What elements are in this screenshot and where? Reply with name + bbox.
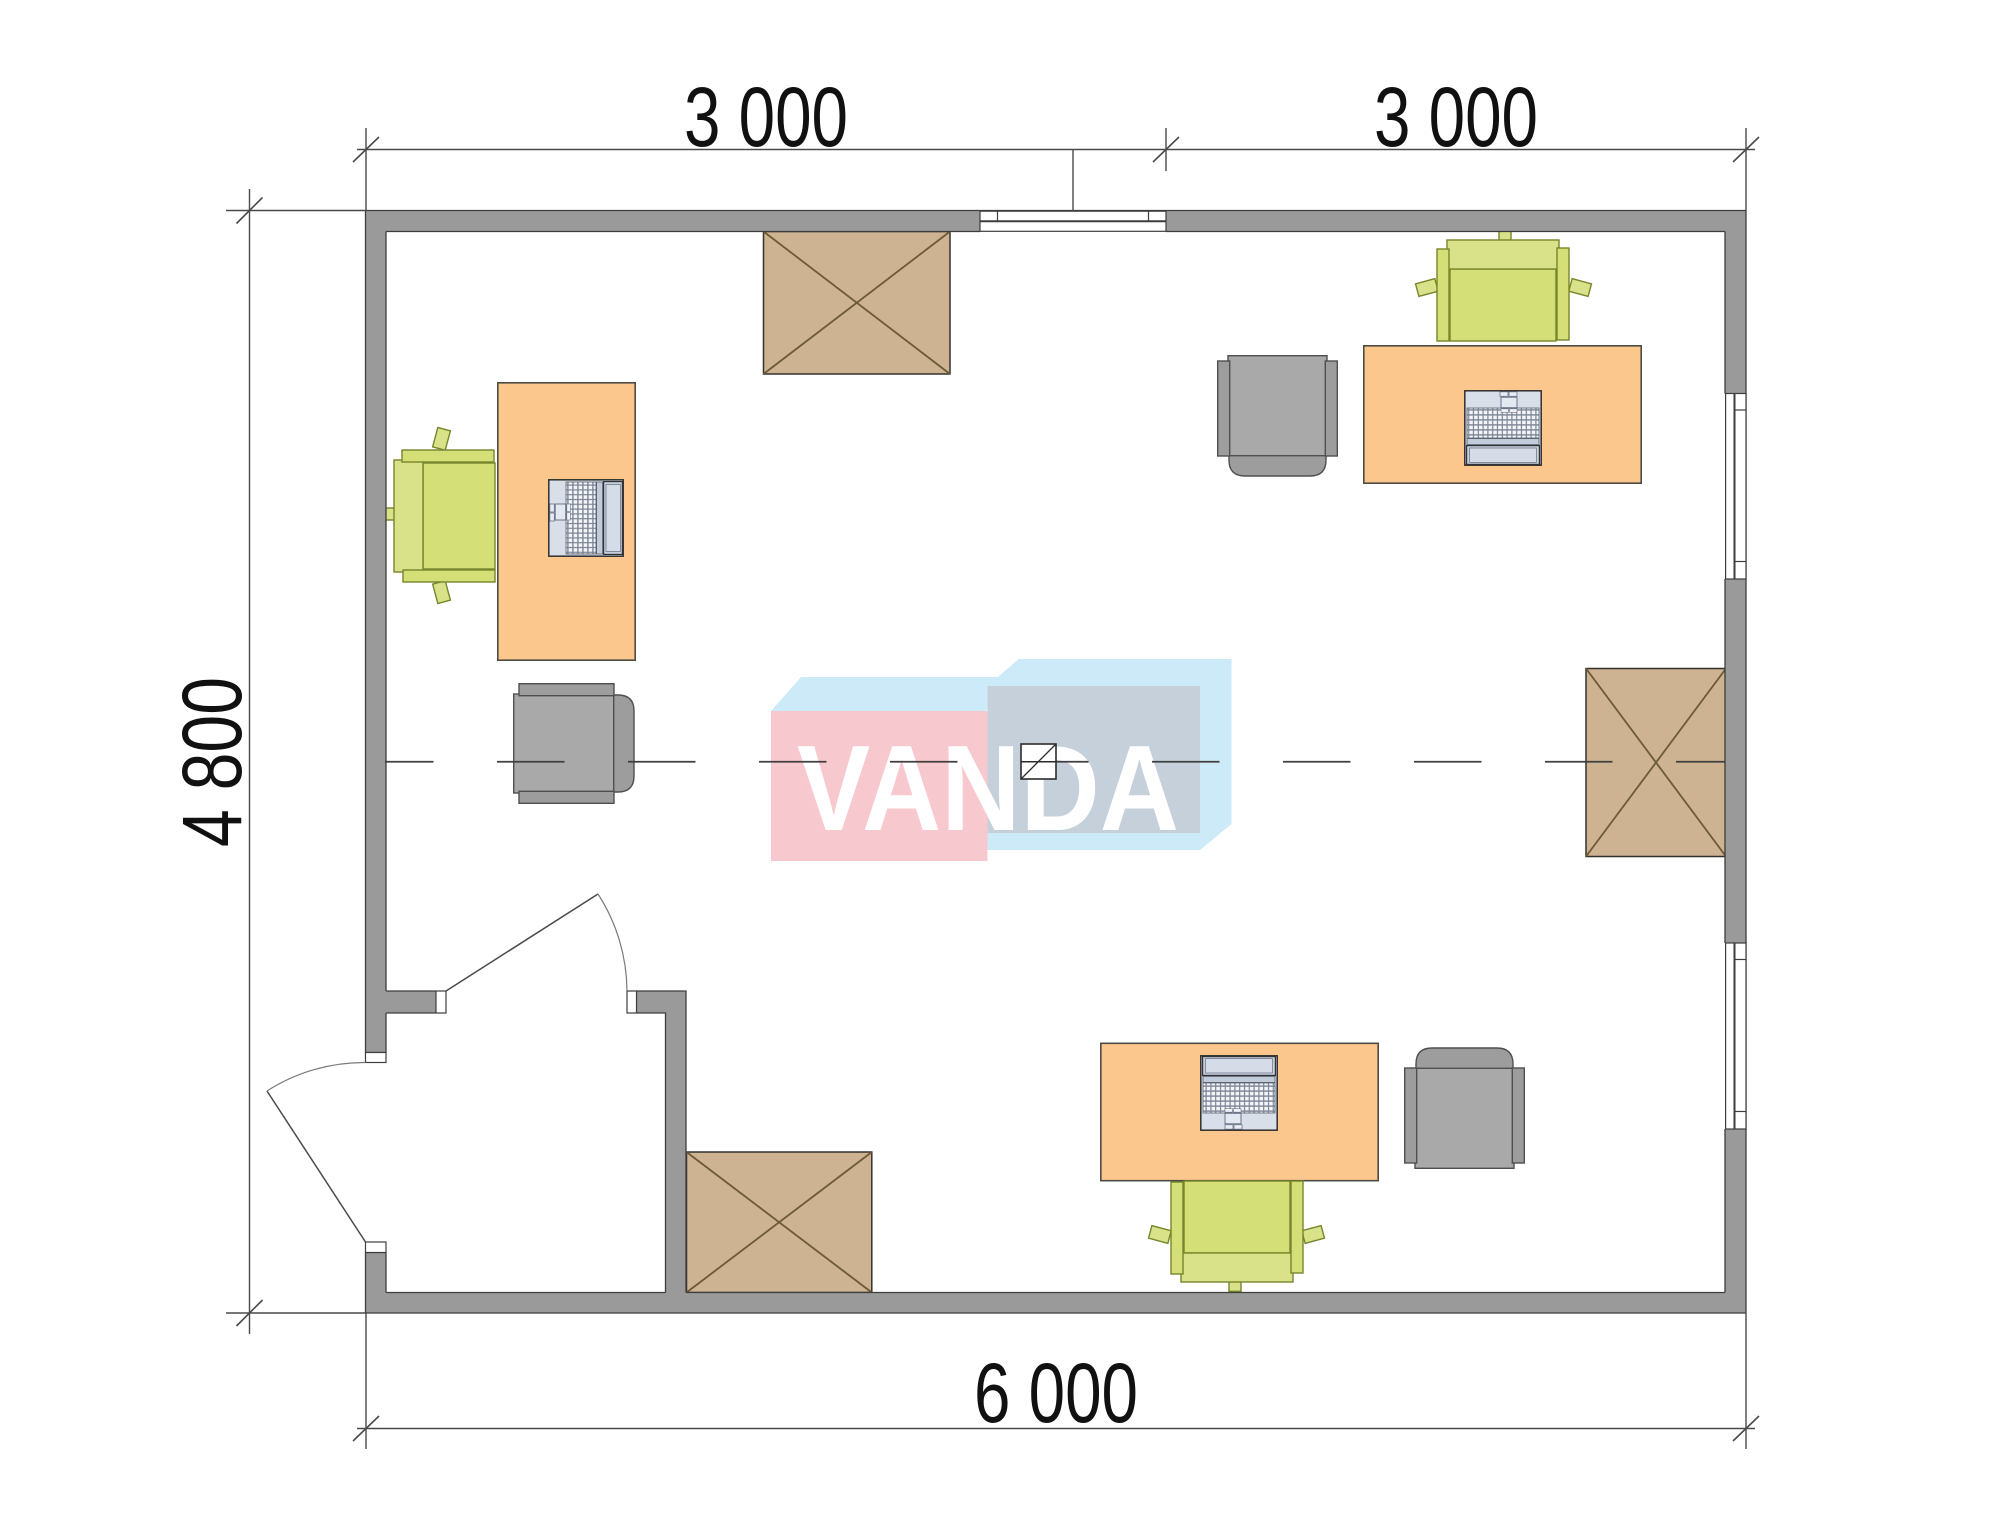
svg-text:4 800: 4 800: [165, 677, 259, 847]
svg-text:6 000: 6 000: [974, 1346, 1138, 1440]
svg-text:3 000: 3 000: [1374, 70, 1538, 164]
svg-text:3 000: 3 000: [684, 70, 848, 164]
